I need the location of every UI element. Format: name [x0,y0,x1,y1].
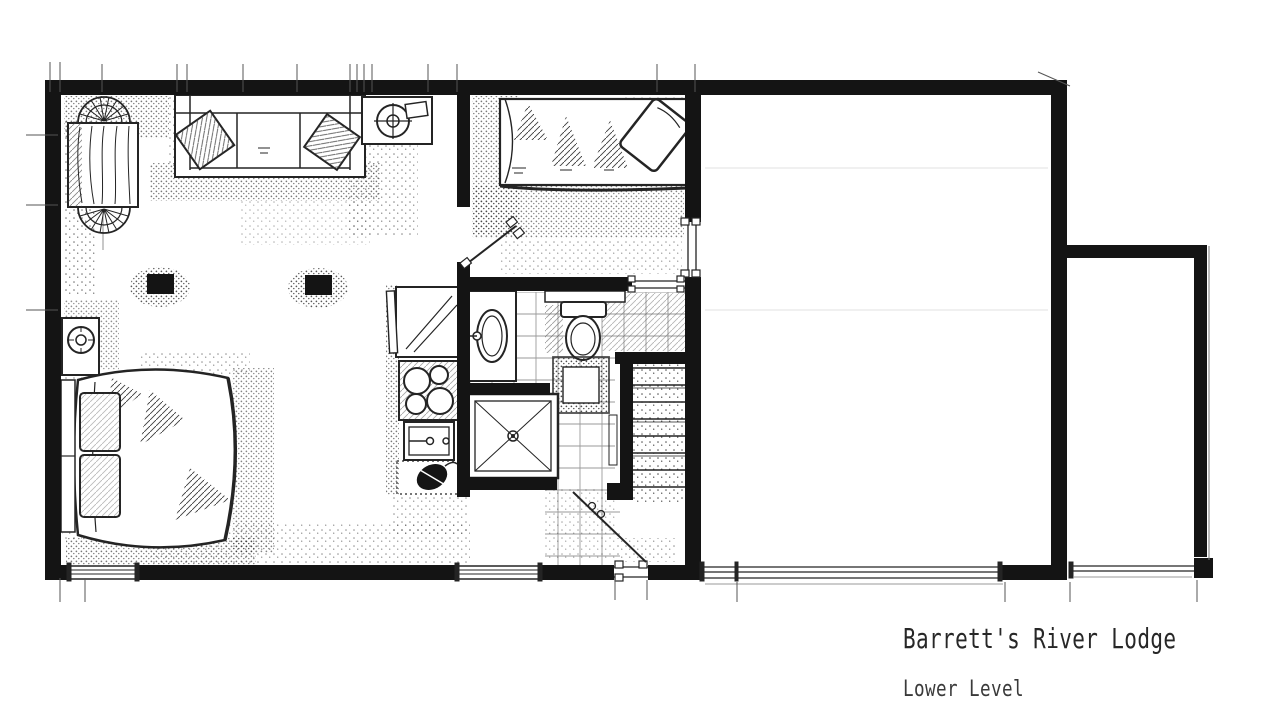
bath-mat [553,357,609,413]
vanity-sink [469,291,516,381]
faint-construction-lines [705,168,1048,310]
kitchen-sink [404,422,454,460]
floor-plan-svg [0,0,1280,720]
cooktop [399,361,458,420]
refrigerator [386,287,458,357]
double-bed [61,369,235,547]
pocket-door-bathroom [628,276,685,292]
counter-appliance [397,459,458,495]
shower [468,394,558,478]
window-bottom-middle [455,563,542,581]
plan-title: Barrett's River Lodge [903,622,1176,655]
wood-stove [362,97,432,144]
floor-plan-page: Barrett's River Lodge Lower Level [0,0,1280,720]
guest-bed [500,97,692,190]
title-block: Barrett's River Lodge Lower Level [903,622,1268,702]
sliding-glass-door [700,562,1003,584]
window-bottom-left [67,563,139,581]
window-side-room [1069,562,1194,578]
plan-subtitle: Lower Level [903,677,1195,702]
nightstand-with-lamp [62,318,99,375]
